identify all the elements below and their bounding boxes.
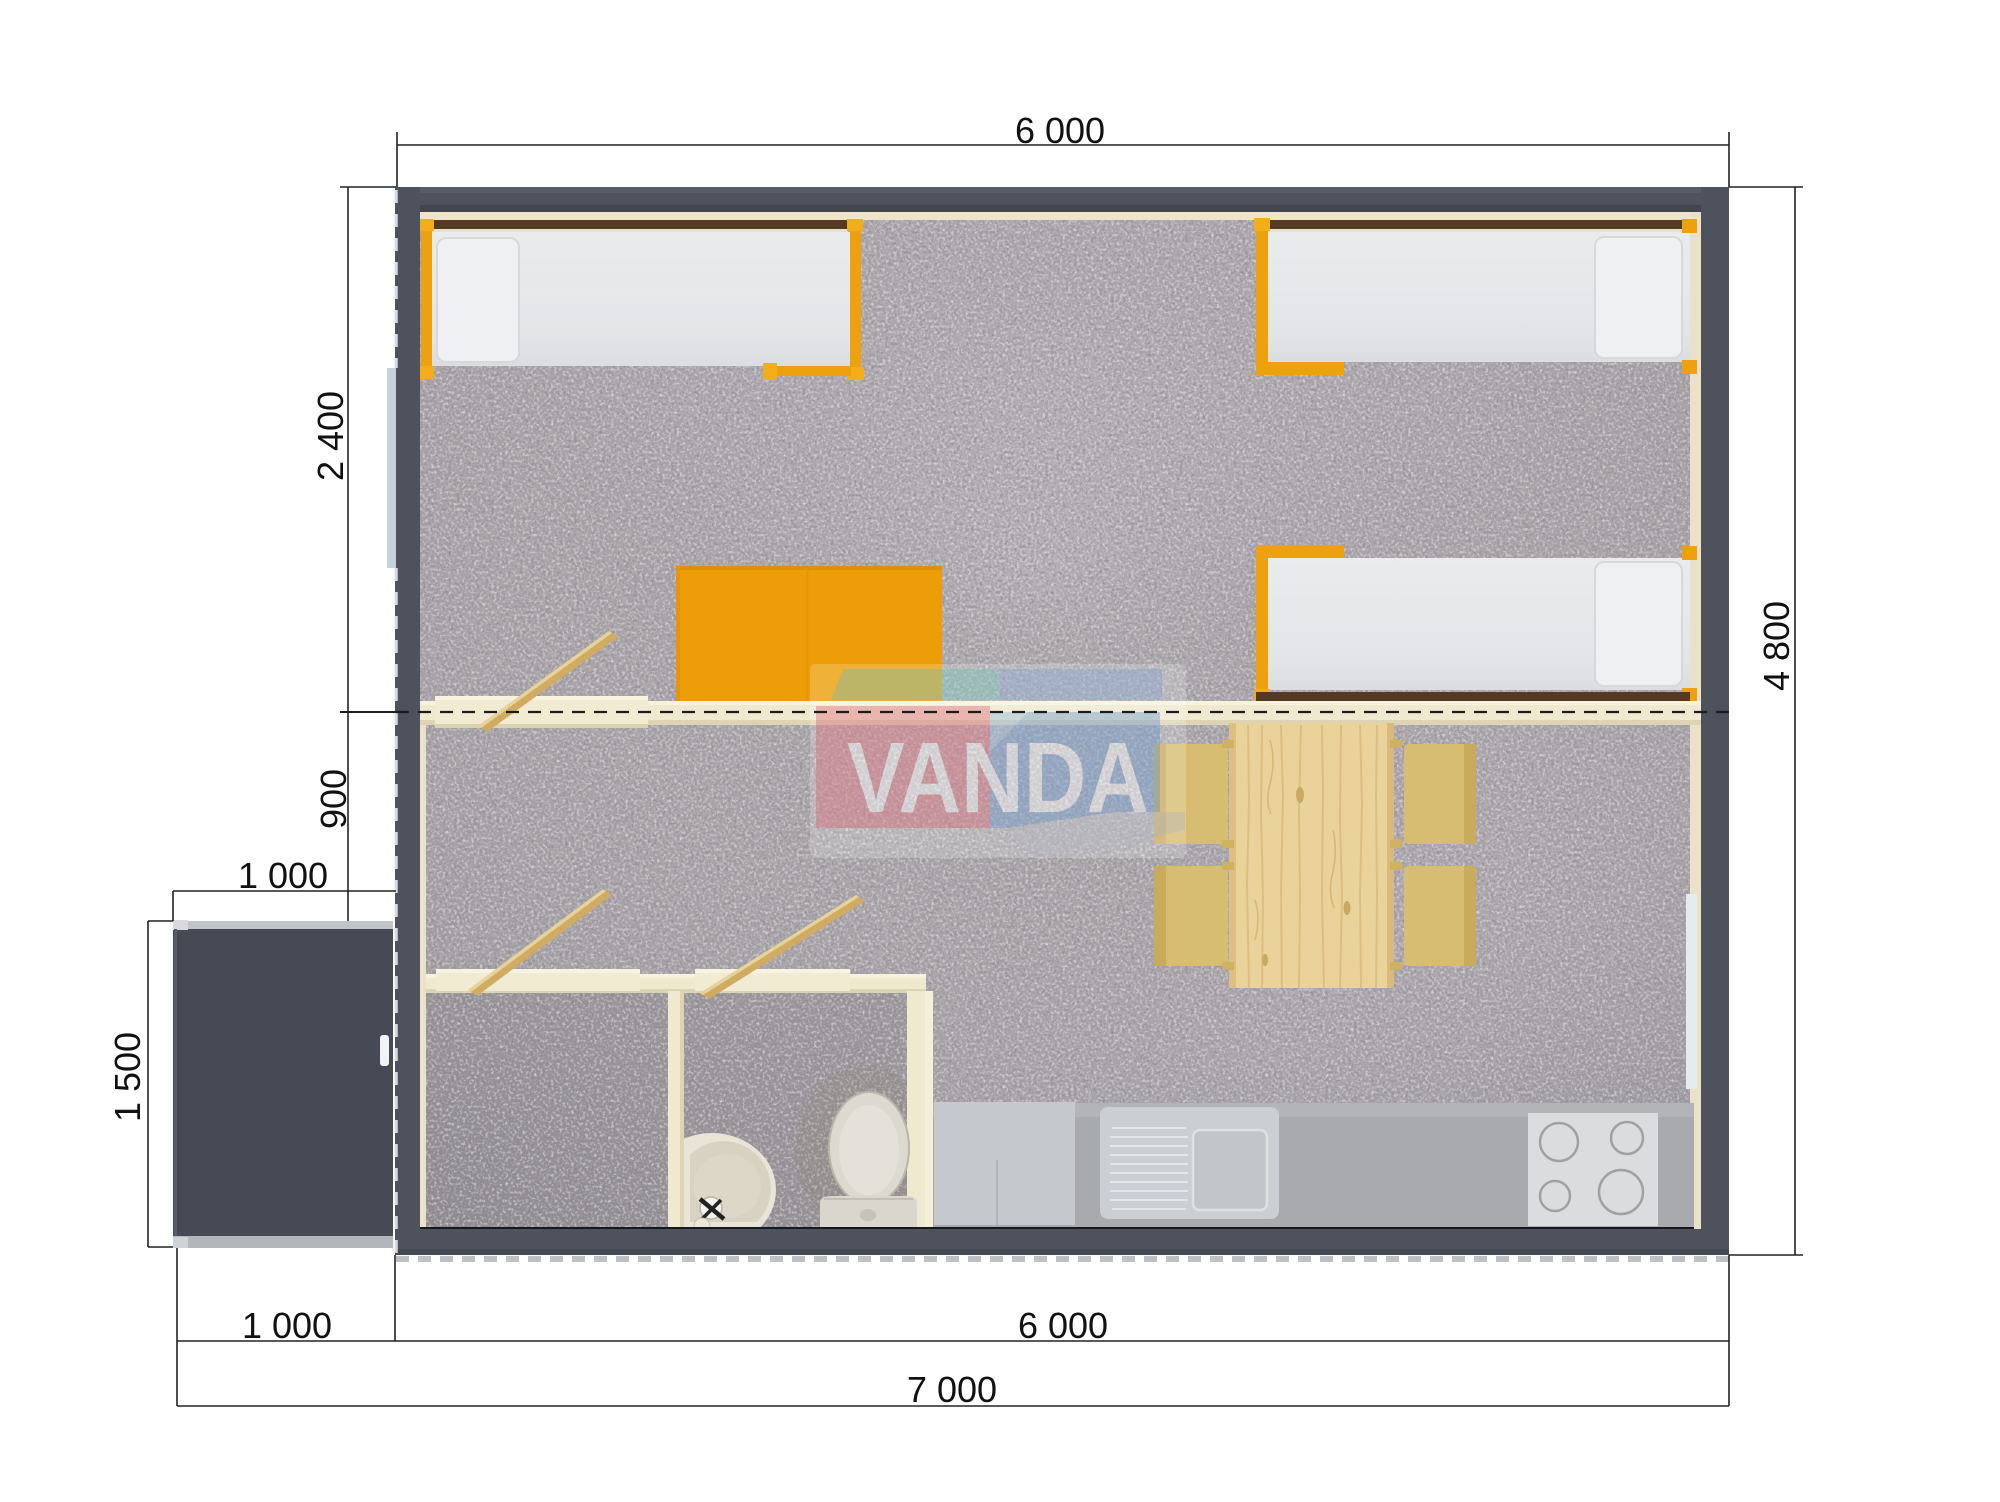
- svg-text:6 000: 6 000: [1015, 110, 1105, 151]
- svg-text:2 400: 2 400: [310, 391, 351, 481]
- svg-text:4 800: 4 800: [1756, 601, 1797, 691]
- svg-text:900: 900: [313, 769, 354, 829]
- svg-text:VANDA: VANDA: [847, 722, 1149, 834]
- svg-text:1 500: 1 500: [107, 1032, 148, 1122]
- svg-text:7 000: 7 000: [907, 1369, 997, 1410]
- svg-text:6 000: 6 000: [1018, 1305, 1108, 1346]
- svg-text:1 000: 1 000: [242, 1305, 332, 1346]
- svg-text:1 000: 1 000: [238, 855, 328, 896]
